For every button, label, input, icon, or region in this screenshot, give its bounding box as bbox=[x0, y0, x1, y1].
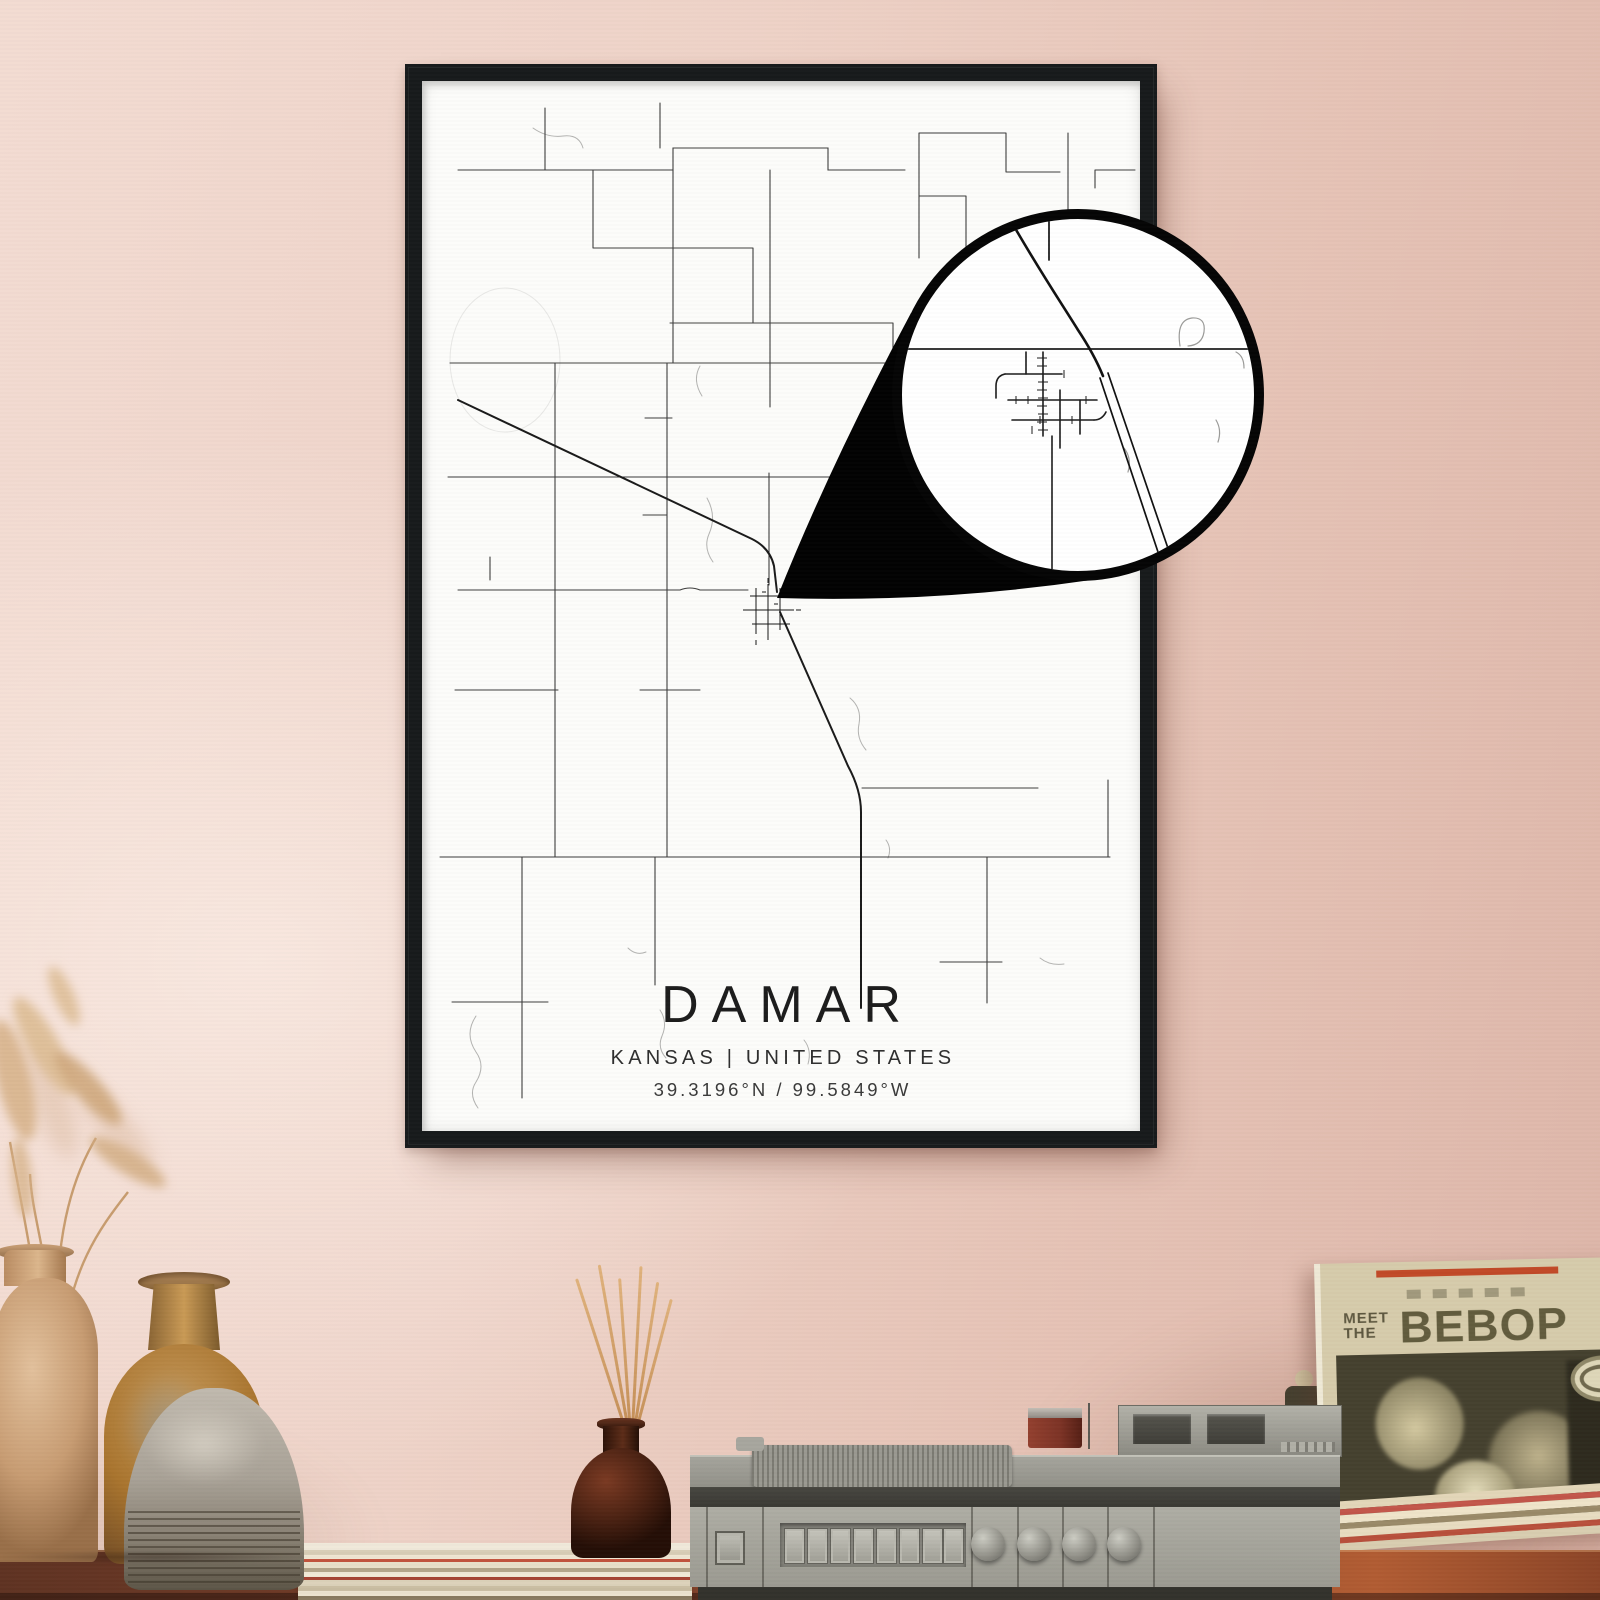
poster-title: DAMAR bbox=[422, 975, 1140, 1035]
lighter-on-player bbox=[1028, 1408, 1082, 1448]
player-power-button bbox=[715, 1531, 745, 1565]
player-key bbox=[807, 1528, 828, 1564]
player-console-window bbox=[1133, 1414, 1191, 1444]
player-key-tray bbox=[780, 1523, 966, 1567]
magnifier-lens bbox=[897, 214, 1259, 576]
player-knob bbox=[971, 1527, 1005, 1561]
player-console-window bbox=[1207, 1414, 1265, 1444]
sleeve-title-the: THE bbox=[1343, 1325, 1389, 1341]
poster-coordinates: 39.3196°N / 99.5849°W bbox=[422, 1079, 1140, 1101]
player-base bbox=[698, 1587, 1332, 1600]
map-magnifier-callout bbox=[740, 180, 1300, 620]
cover-art-face-left bbox=[1375, 1377, 1465, 1471]
vase-tan-body bbox=[0, 1278, 98, 1562]
player-key bbox=[899, 1528, 920, 1564]
player-panel-groove bbox=[1153, 1507, 1155, 1587]
player-panel-groove bbox=[706, 1507, 708, 1587]
player-tonearm-rod bbox=[1088, 1403, 1090, 1449]
sleeve-accent-stripe bbox=[1376, 1266, 1558, 1277]
reed-diffuser-bottle bbox=[571, 1418, 671, 1558]
player-key bbox=[853, 1528, 874, 1564]
player-console-buttons bbox=[1281, 1442, 1335, 1452]
pampas-plumes bbox=[0, 963, 172, 1219]
vase-gray-ribs bbox=[128, 1506, 300, 1584]
player-key bbox=[922, 1528, 943, 1564]
record-player bbox=[690, 1403, 1340, 1600]
player-panel-groove bbox=[762, 1507, 764, 1587]
vase-tall-tan bbox=[0, 1250, 98, 1562]
diffuser-body bbox=[571, 1448, 671, 1558]
vase-gray-glaze bbox=[144, 1404, 264, 1484]
player-key bbox=[876, 1528, 897, 1564]
player-knob bbox=[1017, 1527, 1051, 1561]
poster-subtitle: KANSAS | UNITED STATES bbox=[422, 1047, 1140, 1070]
sleeve-top-marks bbox=[1407, 1287, 1537, 1299]
player-knob bbox=[1062, 1527, 1096, 1561]
magazine-edge bbox=[298, 1596, 692, 1600]
player-knob bbox=[1107, 1527, 1141, 1561]
player-platter bbox=[752, 1445, 1012, 1487]
sleeve-title-small: MEET THE bbox=[1343, 1310, 1389, 1341]
player-key bbox=[784, 1528, 805, 1564]
player-key bbox=[943, 1528, 964, 1564]
room-scene: DAMAR KANSAS | UNITED STATES 39.3196°N /… bbox=[0, 0, 1600, 1600]
poster-title-block: DAMAR KANSAS | UNITED STATES 39.3196°N /… bbox=[422, 975, 1140, 1101]
player-mid-band bbox=[690, 1487, 1340, 1507]
sleeve-header: MEET THE BEBOP bbox=[1335, 1301, 1600, 1353]
vase-shadow bbox=[0, 1552, 310, 1562]
player-rear-knob bbox=[736, 1437, 764, 1451]
sleeve-title-bebop: BEBOP bbox=[1399, 1297, 1569, 1353]
vase-ochre-neck bbox=[148, 1284, 220, 1350]
player-key bbox=[830, 1528, 851, 1564]
player-rear-console bbox=[1118, 1405, 1342, 1457]
